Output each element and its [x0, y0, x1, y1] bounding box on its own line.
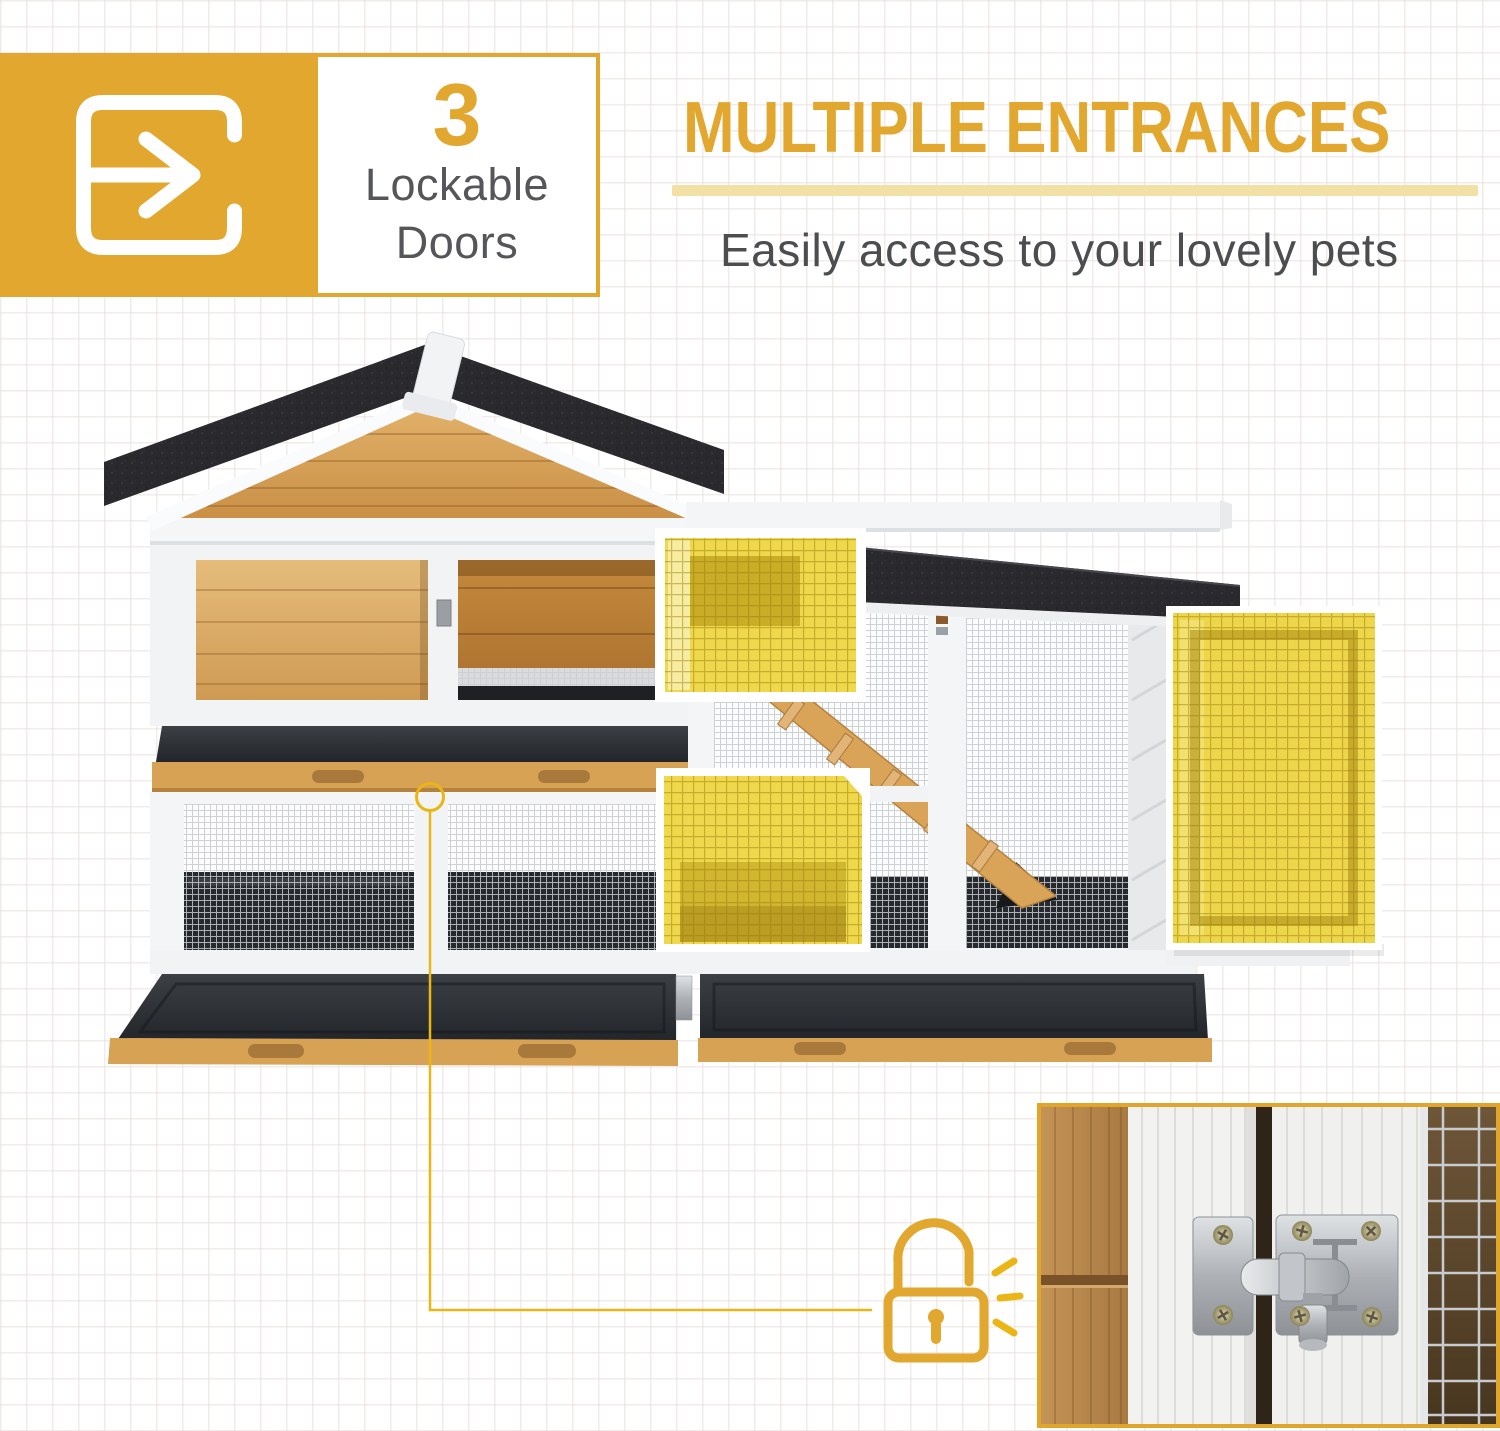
highlight-door-right [1166, 606, 1384, 956]
page: 3 Lockable Doors MULTIPLE ENTRANCES Easi… [0, 0, 1500, 1431]
title-underline [672, 185, 1478, 196]
slide-latch [437, 600, 451, 626]
door-entrance-icon [76, 95, 242, 255]
center-mullion [416, 792, 448, 974]
open-compartment [458, 560, 658, 702]
badge-label-line2: Doors [396, 214, 519, 272]
run-top-beam [686, 500, 1232, 532]
slide-bolt-latch [1193, 1215, 1398, 1351]
house-section [104, 329, 724, 1066]
latch-closeup [1041, 1107, 1496, 1424]
badge-icon-tile [0, 53, 318, 297]
highlight-door-middle [656, 768, 870, 952]
emphasis-marks [995, 1261, 1020, 1333]
lower-mesh-run [150, 792, 695, 974]
litter-tray-left [108, 974, 678, 1066]
page-subtitle: Easily access to your lovely pets [720, 224, 1399, 277]
upper-tray [152, 726, 698, 792]
gable-base-beam [150, 518, 695, 545]
badge-text-box: 3 Lockable Doors [318, 53, 600, 297]
upper-hutch-box [150, 545, 695, 726]
sliding-wood-door [196, 560, 428, 702]
highlight-door-top [655, 528, 866, 702]
page-title: MULTIPLE ENTRANCES [683, 92, 1390, 164]
latch-inset-photo [1037, 1103, 1500, 1428]
run-center-post [928, 604, 966, 974]
house-bottom-rail [150, 700, 695, 726]
badge-count: 3 [433, 73, 482, 157]
center-leg [676, 976, 692, 1020]
open-padlock-icon [888, 1223, 984, 1358]
badge-label-line1: Lockable [365, 156, 549, 214]
litter-tray-right [698, 974, 1212, 1062]
wire-mesh [1428, 1107, 1496, 1424]
feature-badge: 3 Lockable Doors [0, 53, 600, 297]
